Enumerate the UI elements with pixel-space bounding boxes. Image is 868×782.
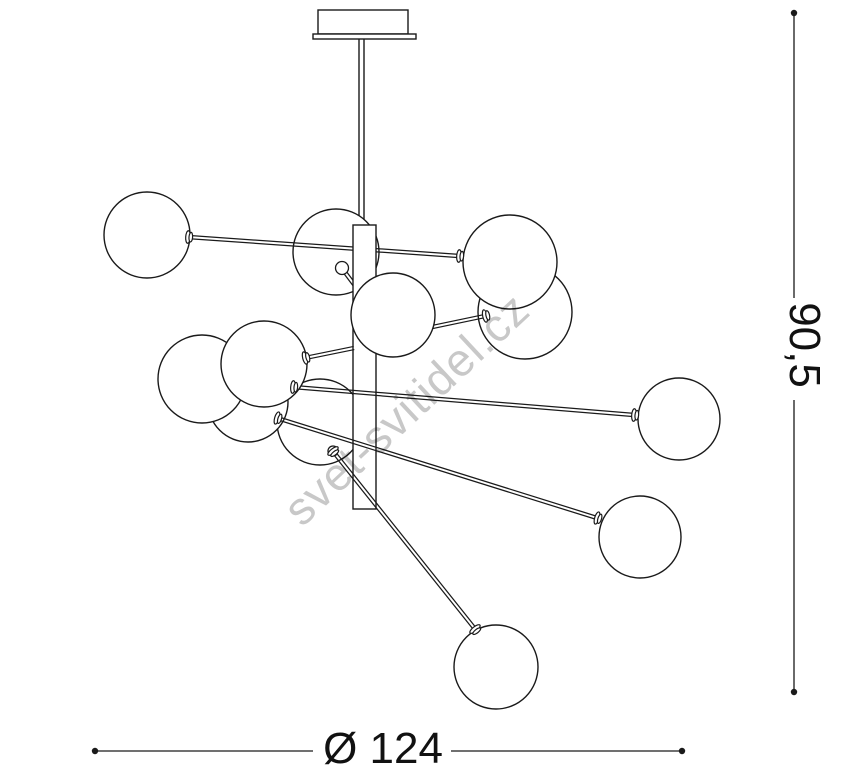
flange-washer [635, 410, 639, 420]
globe-sphere [104, 192, 190, 278]
height-dimension-label: 90,5 [780, 302, 829, 388]
arm-flange [290, 381, 298, 394]
dim-end-dot [92, 748, 98, 754]
joint-knob [336, 262, 349, 275]
ceiling-canopy [318, 10, 408, 34]
globe-sphere [638, 378, 720, 460]
globe-sphere [599, 496, 681, 578]
product-dimension-diagram: Ø 124 90,5 svet-svitidel.cz [0, 0, 868, 782]
flange-washer [460, 251, 464, 261]
dim-end-dot [791, 10, 797, 16]
width-dimension-label: Ø 124 [323, 724, 443, 773]
globe-sphere [454, 625, 538, 709]
hanging-stem [359, 36, 364, 228]
dim-end-dot [791, 689, 797, 695]
flange-washer [189, 232, 193, 242]
arm-flange [456, 250, 464, 263]
arm-flange [631, 409, 639, 422]
chandelier-line-drawing: Ø 124 90,5 svet-svitidel.cz [0, 0, 868, 782]
globe-sphere [351, 273, 435, 357]
flange-washer [294, 382, 298, 392]
globe-sphere [221, 321, 307, 407]
dim-end-dot [679, 748, 685, 754]
arm-flange [185, 231, 193, 244]
canopy-flange [313, 34, 416, 39]
